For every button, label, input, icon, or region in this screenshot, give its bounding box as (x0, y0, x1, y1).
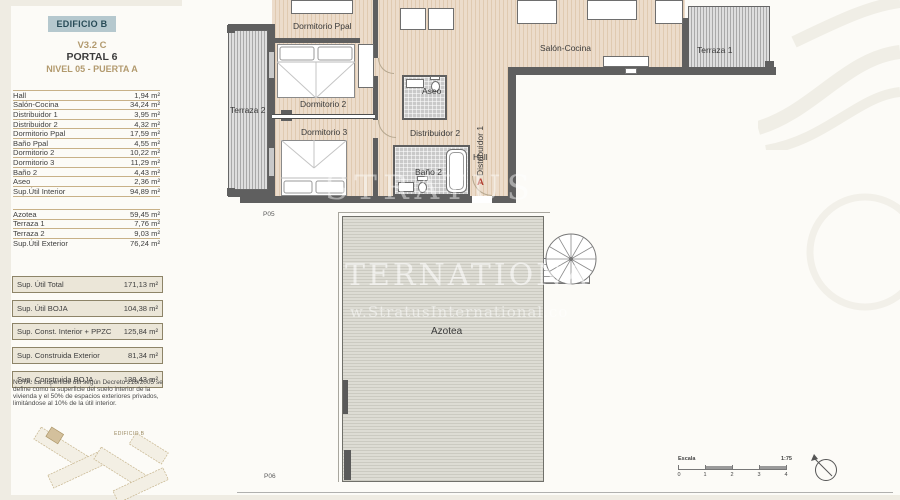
portal-title: PORTAL 6 (12, 51, 172, 63)
scale-number: 4 (784, 472, 787, 478)
room-label-dormitorio-3: Dormitorio 3 (301, 127, 347, 137)
table-row: Salón-Cocina34,24 m² (13, 100, 160, 110)
row-value: 9,03 m² (134, 229, 160, 238)
parapet-line (338, 212, 339, 482)
scale-label: Escala (678, 456, 695, 462)
sliding-partition (272, 114, 375, 119)
watermark-text: STRATUS (325, 168, 536, 205)
building-title: EDIFICIO B (56, 19, 107, 29)
wall-pillar (227, 25, 235, 33)
scale-number: 3 (757, 472, 760, 478)
unit-version: V3.2 C (12, 40, 172, 51)
wall-pillar (765, 61, 774, 70)
exterior-areas-table: Azotea59,45 m² Terraza 17,76 m² Terraza … (13, 209, 160, 247)
wardrobe (428, 8, 454, 30)
wall (682, 18, 689, 70)
row-label: Terraza 2 (13, 229, 45, 238)
roof-access-mark (343, 380, 348, 414)
row-value: 17,59 m² (130, 129, 160, 138)
scale-tick (786, 465, 787, 470)
room-label-distribuidor-2: Distribuidor 2 (410, 128, 460, 138)
wall-opening (625, 68, 637, 74)
table-row: Sup.Útil Exterior76,24 m² (13, 238, 160, 248)
level-title: NIVEL 05 - PUERTA A (12, 64, 172, 74)
table-row: Aseo2,36 m² (13, 176, 160, 186)
row-value: 94,89 m² (130, 187, 160, 196)
row-value: 4,32 m² (134, 120, 160, 129)
scale-segment (705, 466, 732, 469)
wall-pillar (227, 188, 235, 196)
table-row: Dormitorio 311,29 m² (13, 157, 160, 167)
row-value: 59,45 m² (130, 210, 160, 219)
table-row: Distribuidor 13,95 m² (13, 109, 160, 119)
row-value: 7,76 m² (134, 219, 160, 228)
sheet-label-p06: P06 (264, 473, 276, 480)
roofplan-azotea: Azotea (335, 210, 605, 485)
room-label-terraza-2: Terraza 2 (230, 105, 265, 115)
row-value: 3,95 m² (134, 110, 160, 119)
building-title-box: EDIFICIO B (48, 16, 116, 32)
table-row: Terraza 17,76 m² (13, 219, 160, 229)
scale-number: 2 (730, 472, 733, 478)
nota-text: NOTA: La superficie útil según Decreto 2… (13, 379, 164, 407)
toilet-tank (430, 76, 440, 80)
wall (272, 38, 360, 43)
kitchen-counter (587, 0, 637, 20)
scale-number: 0 (677, 472, 680, 478)
roof-deck (342, 216, 544, 482)
summary-label: Sup. Útil Total (17, 280, 64, 289)
table-row: Terraza 29,03 m² (13, 228, 160, 238)
row-label: Baño Ppal (13, 139, 48, 148)
summary-value: 125,84 m² (124, 327, 158, 336)
window (269, 148, 274, 176)
room-label-dormitorio-2: Dormitorio 2 (300, 99, 346, 109)
row-label: Aseo (13, 177, 30, 186)
terrace-1-deck (688, 6, 770, 70)
row-label: Sup.Útil Interior (13, 187, 65, 196)
row-value: 4,43 m² (134, 168, 160, 177)
row-label: Hall (13, 91, 26, 100)
row-label: Distribuidor 1 (13, 110, 58, 119)
keyplan: EDIFICIO B (18, 424, 182, 500)
row-label: Dormitorio Ppal (13, 129, 65, 138)
row-value: 76,24 m² (130, 239, 160, 248)
kitchen-counter (655, 0, 683, 24)
table-row: Baño Ppal4,55 m² (13, 138, 160, 148)
wardrobe (291, 0, 353, 14)
summary-label: Sup. Const. Interior + PPZC (17, 327, 111, 336)
room-label-dormitorio-ppal: Dormitorio Ppal (293, 21, 352, 31)
sidebar: EDIFICIO B V3.2 C PORTAL 6 NIVEL 05 - PU… (12, 0, 172, 500)
summary-value: 171,13 m² (124, 280, 158, 289)
room-label-distribuidor-1: Distribuidor 1 (475, 86, 485, 176)
summary-box: Sup. Útil Total171,13 m² (12, 276, 163, 293)
row-label: Dormitorio 2 (13, 148, 54, 157)
wardrobe (400, 8, 426, 30)
window (269, 52, 274, 78)
room-label-salon-cocina: Salón-Cocina (540, 43, 591, 53)
scale-ratio: 1:75 (781, 456, 792, 462)
row-label: Salón-Cocina (13, 100, 59, 109)
row-value: 10,22 m² (130, 148, 160, 157)
row-value: 1,94 m² (134, 91, 160, 100)
table-row: Azotea59,45 m² (13, 209, 160, 219)
table-row: Sup.Útil Interior94,89 m² (13, 186, 160, 196)
row-label: Sup.Útil Exterior (13, 239, 68, 248)
plan-sheet-page: { "header": { "building": "EDIFICIO B", … (0, 0, 900, 500)
north-arrow-icon (806, 453, 842, 485)
sheet-label-p05: P05 (263, 211, 275, 218)
scale-segment (759, 466, 786, 469)
watermark-text: TERNATIONA (345, 258, 590, 293)
table-row: Distribuidor 24,32 m² (13, 119, 160, 129)
row-label: Terraza 1 (13, 219, 45, 228)
floorplan-level-05: Dormitorio Ppal Dormitorio 2 Dormitorio … (225, 0, 785, 205)
summary-value: 104,38 m² (124, 304, 158, 313)
summary-box: Sup. Construida Exterior81,34 m² (12, 347, 163, 364)
row-label: Dormitorio 3 (13, 158, 54, 167)
scale-bar: Escala 1:75 0 1 2 3 4 (678, 456, 792, 482)
row-value: 11,29 m² (131, 158, 160, 167)
table-row: Hall1,94 m² (13, 90, 160, 100)
row-value: 34,24 m² (130, 100, 160, 109)
keyplan-building-label: EDIFICIO B (114, 431, 145, 437)
row-label: Azotea (13, 210, 37, 219)
interior-areas-table: Hall1,94 m² Salón-Cocina34,24 m² Distrib… (13, 90, 160, 197)
wardrobe (358, 44, 374, 88)
bottom-rule (237, 492, 893, 493)
summary-value: 81,34 m² (128, 351, 158, 360)
bed-double (277, 44, 355, 98)
row-value: 4,55 m² (134, 139, 160, 148)
watermark-text: w.StratusInternational.co (350, 303, 568, 321)
summary-box: Sup. Útil BOJA104,38 m² (12, 300, 163, 317)
summary-box: Sup. Const. Interior + PPZC125,84 m² (12, 323, 163, 340)
summary-label: Sup. Útil BOJA (17, 304, 68, 313)
scale-tick (759, 465, 760, 470)
table-row: Dormitorio Ppal17,59 m² (13, 128, 160, 138)
kitchen-counter (517, 0, 557, 24)
row-value: 2,36 m² (134, 177, 160, 186)
room-label-azotea: Azotea (431, 326, 462, 337)
scale-number: 1 (703, 472, 706, 478)
wall (508, 67, 776, 75)
row-label: Distribuidor 2 (13, 120, 58, 129)
room-label-aseo: Aseo (422, 86, 441, 96)
left-margin-band (0, 0, 11, 500)
table-row: Dormitorio 210,22 m² (13, 148, 160, 158)
parapet-line (338, 212, 550, 213)
scale-tick (705, 465, 706, 470)
summary-label: Sup. Construida Exterior (17, 351, 100, 360)
roof-access-mark (344, 450, 351, 480)
circle-watermark (795, 190, 900, 320)
table-row: Baño 24,43 m² (13, 167, 160, 177)
scale-tick (732, 465, 733, 470)
kitchen-island (603, 56, 649, 67)
room-label-terraza-1: Terraza 1 (697, 45, 732, 55)
scale-tick (678, 465, 679, 470)
row-label: Baño 2 (13, 168, 37, 177)
